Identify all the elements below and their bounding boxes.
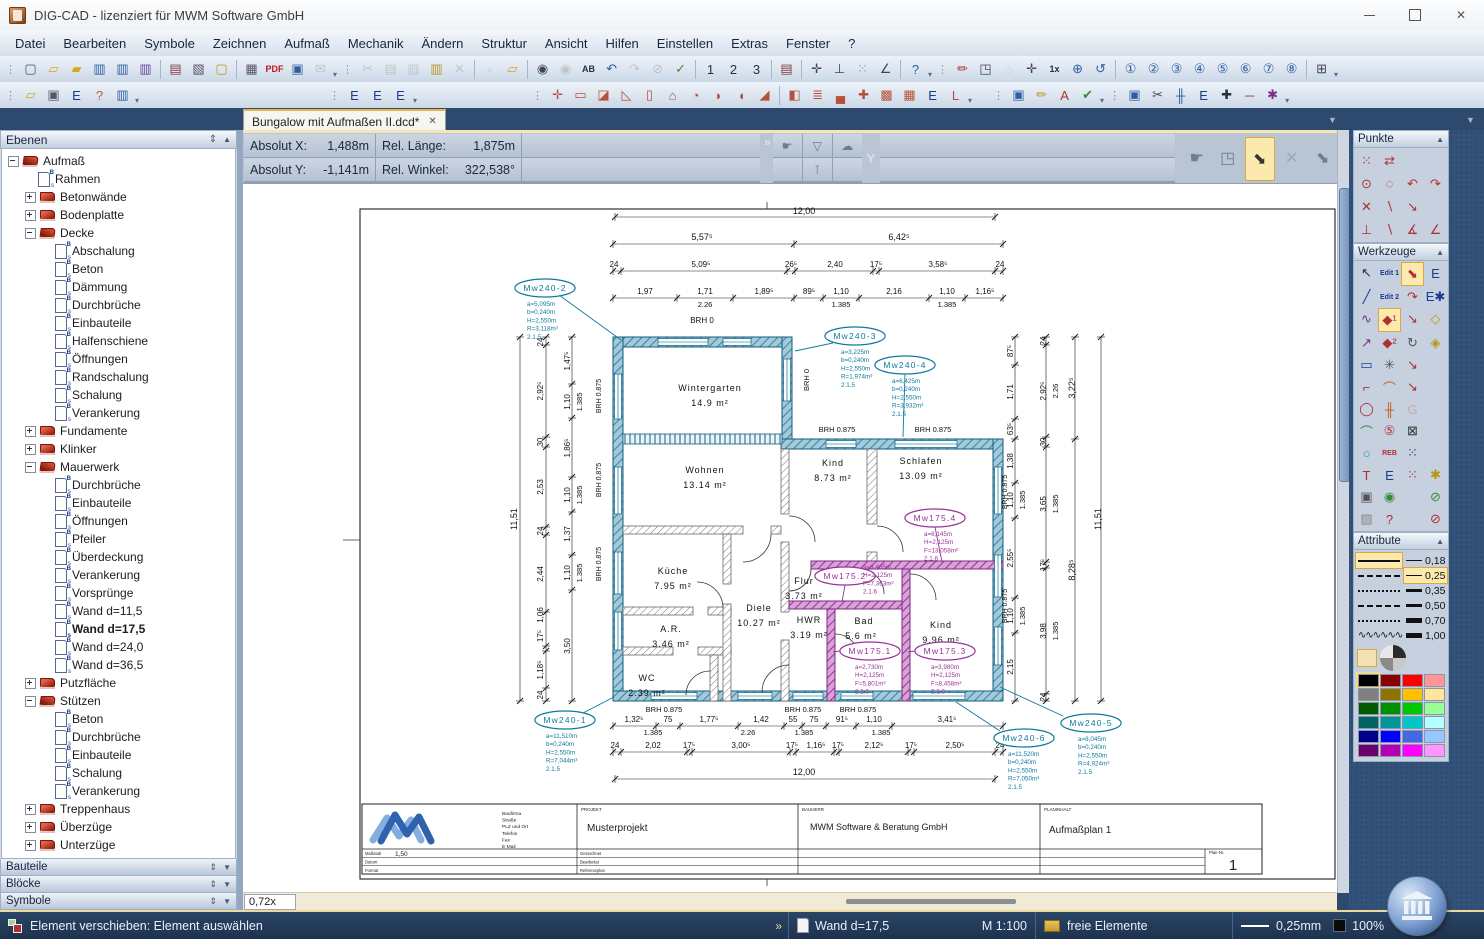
tree-item-wand-d=36,5[interactable]: BsWand d=36,5 (2, 656, 235, 674)
color-swatch-#96c8ff[interactable] (1424, 730, 1445, 743)
confirm-icon[interactable]: ✓ (669, 58, 692, 80)
corner-tool-icon[interactable]: ⌐ (1355, 376, 1378, 398)
mirror-tool-icon[interactable]: ↗ (1355, 332, 1378, 354)
aufmass-slope-icon[interactable]: ◢ (753, 84, 776, 106)
view-8-icon[interactable]: ⑧ (1280, 58, 1303, 80)
text-attributes-icon[interactable]: A (1053, 84, 1076, 106)
aufmass-stack-icon[interactable]: ▄ (829, 84, 852, 106)
move-copy-button[interactable]: ⬊ (1309, 137, 1337, 179)
layers-panel-header[interactable]: Ebenen ⇕ ▲ (0, 130, 237, 149)
snap-angle-icon[interactable]: ∠ (874, 58, 897, 80)
tree-item-betonwände[interactable]: Betonwände (2, 188, 235, 206)
line-style-2[interactable] (1356, 583, 1402, 598)
pan-hand-button[interactable]: ☛ (1183, 137, 1211, 179)
snap-settings-icon[interactable]: ✳ (1378, 354, 1401, 376)
polyline-tool-icon[interactable]: ∿ (1355, 308, 1378, 330)
arc-point-tool-icon[interactable]: ⌒ (1378, 376, 1401, 398)
tree-item-überdeckung[interactable]: BsÜberdeckung (2, 548, 235, 566)
snap-blank-icon[interactable] (833, 158, 862, 181)
menu-extras[interactable]: Extras (722, 32, 777, 55)
callout-detail: 2.1.6 (931, 689, 946, 696)
node-add-icon[interactable]: ✚ (1215, 84, 1238, 106)
hide-image-icon[interactable]: ⊘ (1424, 508, 1447, 530)
menu-?[interactable]: ? (839, 32, 864, 55)
toolbar-overflow-icon[interactable]: ▾ (1334, 70, 1338, 82)
undo-icon[interactable]: ↶ (600, 58, 623, 80)
panel-expand-icon[interactable]: ▼ (223, 897, 231, 906)
color-swatch-#6a006a[interactable] (1358, 744, 1379, 757)
panel-collapse-icon[interactable]: ▲ (1436, 537, 1444, 546)
active-layer-indicator[interactable]: Wand d=17,5 M 1:100 (788, 912, 1035, 939)
tree-item-wand-d=17,5[interactable]: BsWand d=17,5 (2, 620, 235, 638)
zoom-previous-icon[interactable]: ↺ (1089, 58, 1112, 80)
line-style-1[interactable] (1356, 568, 1402, 583)
dimension-label: 1,10 (563, 565, 572, 581)
color-swatch-#ff0000[interactable] (1402, 674, 1423, 687)
panel-spin-icon[interactable]: ⇕ (210, 862, 218, 873)
collapse-icon[interactable] (8, 156, 19, 167)
toolbar-overflow-icon[interactable]: ▾ (413, 96, 417, 108)
page-copy-icon[interactable]: ▢ (210, 58, 233, 80)
style-brush-icon[interactable]: ✏ (1030, 84, 1053, 106)
print-icon[interactable]: ▦ (240, 58, 263, 80)
page-setup-icon[interactable]: ▤ (164, 58, 187, 80)
color-swatch-#000000[interactable] (1358, 674, 1379, 687)
color-swatch-#8f7500[interactable] (1380, 688, 1401, 701)
expand-icon[interactable] (25, 678, 36, 689)
aufmass-e-icon[interactable]: E (921, 84, 944, 106)
tree-item-putzfläche[interactable]: Putzfläche (2, 674, 235, 692)
book-icon (40, 426, 55, 437)
dimension-label: 1,06 (536, 607, 545, 623)
point-center-icon[interactable]: ⊙ (1355, 172, 1378, 195)
point-on-element-icon[interactable]: ∖ (1378, 195, 1401, 218)
point-arc-cw-icon[interactable]: ↶ (1401, 172, 1424, 195)
arc-tool-icon[interactable]: ⌒ (1355, 420, 1378, 442)
tree-item-randschalung[interactable]: BsRandschalung (2, 368, 235, 386)
hide-photo-icon[interactable]: ⊘ (1424, 486, 1447, 508)
tree-item-fundamente[interactable]: Fundamente (2, 422, 235, 440)
panel-collapse-icon[interactable]: ▲ (223, 135, 231, 144)
view-2-icon[interactable]: ② (1142, 58, 1165, 80)
tree-item-beton[interactable]: BsBeton (2, 710, 235, 728)
magic-wand-icon[interactable]: ✱ (1424, 464, 1447, 486)
block-edit-icon[interactable]: E (1378, 464, 1401, 486)
coord-input-field[interactable] (880, 158, 1175, 181)
panel-header-bauteile[interactable]: Bauteile⇕▼ (0, 859, 237, 876)
color-swatch-#ff96ff[interactable] (1424, 744, 1445, 757)
insert-file-icon[interactable]: ▱ (501, 58, 524, 80)
dimension-label: 24 (1039, 336, 1048, 345)
tree-item-aufmaß[interactable]: Aufmaß (2, 152, 235, 170)
relative-length-value: 1,875m (473, 139, 515, 153)
color-swatch-#4169e1[interactable] (1402, 730, 1423, 743)
tree-item-label: Öffnungen (72, 352, 128, 366)
layer-page-icon: Bs (55, 604, 67, 619)
menu-fenster[interactable]: Fenster (777, 32, 839, 55)
snap-cross-icon[interactable]: ✛ (805, 58, 828, 80)
element-mode-indicator[interactable]: freie Elemente (1035, 912, 1232, 939)
export-pdf-icon[interactable]: PDF (263, 58, 286, 80)
line-style-0[interactable] (1356, 553, 1402, 568)
snap-foot-icon[interactable]: ⊥ (828, 58, 851, 80)
line-weight-1,00[interactable]: 1,00 (1404, 628, 1447, 643)
grid-icon[interactable]: ⁙ (851, 58, 874, 80)
point-angle-icon[interactable]: ∡ (1401, 218, 1424, 241)
color-swatch-#006464[interactable] (1358, 716, 1379, 729)
aufmass-rect-icon[interactable]: ▭ (569, 84, 592, 106)
aufmass-rect2-icon[interactable]: ▯ (638, 84, 661, 106)
text-tool-icon[interactable]: T (1355, 464, 1378, 486)
menu-ansicht[interactable]: Ansicht (536, 32, 597, 55)
color-swatch-#ff00ff[interactable] (1402, 744, 1423, 757)
point-arc-ccw-icon[interactable]: ↷ (1424, 172, 1447, 195)
tree-item-öffnungen[interactable]: BsÖffnungen (2, 350, 235, 368)
point-perpendicular-icon[interactable]: ⊥ (1355, 218, 1378, 241)
page-e-new-icon[interactable]: E✱ (1424, 286, 1447, 308)
callout-detail: a=3,465m (863, 564, 891, 571)
werkzeuge-panel-header[interactable]: Werkzeuge ▲ (1353, 243, 1449, 261)
edit-measure-2-icon[interactable]: ▣ (1123, 84, 1146, 106)
redraw-brush-icon[interactable]: ✏ (951, 58, 974, 80)
menu-datei[interactable]: Datei (6, 32, 54, 55)
tree-item-rahmen[interactable]: BsRahmen (2, 170, 235, 188)
paste-special-icon[interactable]: ▥ (425, 58, 448, 80)
pan-icon[interactable]: ✛ (1020, 58, 1043, 80)
ellipse-tool-icon[interactable]: ○ (1355, 442, 1378, 464)
list-settings-icon[interactable]: ✔ (1076, 84, 1099, 106)
color-swatch-#96ff96[interactable] (1424, 702, 1445, 715)
tree-item-wand-d=24,0[interactable]: BsWand d=24,0 (2, 638, 235, 656)
tree-item-verankerung[interactable]: BsVerankerung (2, 782, 235, 800)
solid-3d-tool-icon[interactable]: ◉ (1378, 486, 1401, 508)
layers-icon[interactable]: ▤ (775, 58, 798, 80)
aufmass-wedge-icon[interactable]: ◖ (730, 84, 753, 106)
collapse-icon[interactable] (25, 696, 36, 707)
point-endpoint-icon[interactable]: ↘ (1401, 195, 1424, 218)
snap-text-point-icon[interactable]: ⊺ (803, 158, 832, 181)
horizontal-scroll-thumb[interactable] (846, 899, 1016, 904)
panel-expand-icon[interactable]: ▼ (223, 880, 231, 889)
tree-item-vorsprünge[interactable]: BsVorsprünge (2, 584, 235, 602)
edit-measure-icon[interactable]: ▣ (1007, 84, 1030, 106)
photo-tool-icon[interactable]: ▣ (1355, 486, 1378, 508)
tree-item-beton[interactable]: BsBeton (2, 260, 235, 278)
point-reference-icon[interactable]: ∠ (1424, 218, 1447, 241)
tree-item-treppenhaus[interactable]: Treppenhaus (2, 800, 235, 818)
panel-spin-icon[interactable]: ⇕ (210, 896, 218, 907)
attribute-panel-header[interactable]: Attribute ▲ (1353, 532, 1449, 550)
save-icon[interactable]: ▥ (88, 58, 111, 80)
open-project-icon[interactable]: ▰ (65, 58, 88, 80)
tree-item-verankerung[interactable]: BsVerankerung (2, 566, 235, 584)
line-style-5[interactable]: ∿∿∿∿∿∿ (1356, 628, 1402, 643)
menu-hilfen[interactable]: Hilfen (597, 32, 648, 55)
view-3-icon[interactable]: ③ (1165, 58, 1188, 80)
empty-cell (1401, 149, 1424, 172)
new-file-icon[interactable]: ▢ (19, 58, 42, 80)
line-weight-0,18[interactable]: 0,18 (1404, 553, 1447, 568)
measure-help-icon[interactable]: ? (88, 84, 111, 106)
page-e-icon[interactable]: E (1424, 262, 1447, 284)
tree-item-mauerwerk[interactable]: Mauerwerk (2, 458, 235, 476)
toolbar-overflow-icon[interactable]: ▾ (968, 96, 972, 108)
page-e-left-icon[interactable]: E (366, 84, 389, 106)
point-tangent-icon[interactable]: ∖ (1378, 218, 1401, 241)
tree-item-durchbrüche[interactable]: BsDurchbrüche (2, 296, 235, 314)
view-4-icon[interactable]: ④ (1188, 58, 1211, 80)
snap-cloud-icon[interactable]: ☁ (833, 134, 862, 157)
color-swatch-#8b0000[interactable] (1380, 674, 1401, 687)
point-absolute-icon[interactable]: ⁙ (1355, 149, 1378, 172)
zoom-in-icon[interactable]: ⊕ (1066, 58, 1089, 80)
aufmass-volume-icon[interactable]: ◧ (783, 84, 806, 106)
image-tool-icon[interactable]: ▨ (1355, 508, 1378, 530)
tree-item-verankerung[interactable]: BsVerankerung (2, 404, 235, 422)
toolbar-overflow-icon[interactable]: ▾ (928, 70, 932, 82)
move-point-2-icon[interactable]: ◆² (1378, 332, 1401, 354)
measure-query-icon[interactable]: ? (1378, 508, 1401, 530)
edit-2-icon[interactable]: Edit 2 (1378, 286, 1401, 308)
color-swatch-#009696[interactable] (1380, 716, 1401, 729)
circle-tool-icon[interactable]: ◯ (1355, 398, 1378, 420)
move-element-button[interactable]: ⬊ (1245, 137, 1275, 181)
panel-dropdown-icon[interactable]: ▼ (1466, 115, 1475, 125)
aufmass-grid-icon[interactable]: ▩ (875, 84, 898, 106)
color-swatch-#ff9696[interactable] (1424, 674, 1445, 687)
expand-icon[interactable] (25, 804, 36, 815)
expand-icon[interactable] (25, 210, 36, 221)
copy-e-icon[interactable]: E (1192, 84, 1215, 106)
panel-header-symbole[interactable]: Symbole⇕▼ (0, 893, 237, 910)
point-quadrant-icon[interactable]: ◌ (1378, 172, 1401, 195)
tree-item-einbauteile[interactable]: BsEinbauteile (2, 494, 235, 512)
menu-ndern[interactable]: Ändern (412, 32, 472, 55)
toolbar-overflow-icon[interactable]: ▾ (333, 70, 337, 82)
coord-input-field[interactable] (880, 134, 1175, 157)
color-swatch-#00c800[interactable] (1402, 702, 1423, 715)
menu-struktur[interactable]: Struktur (472, 32, 536, 55)
aufmass-arc-icon[interactable]: ◗ (707, 84, 730, 106)
expand-icon[interactable] (25, 822, 36, 833)
tree-item-klinker[interactable]: Klinker (2, 440, 235, 458)
zoom-1x-icon[interactable]: 1x (1043, 58, 1066, 80)
points-color-icon[interactable]: ⁙ (1401, 464, 1424, 486)
tree-item-öffnungen[interactable]: BsÖffnungen (2, 512, 235, 530)
color-swatch-#808080[interactable] (1358, 688, 1379, 701)
color-swatch-#00c8c8[interactable] (1402, 716, 1423, 729)
page-2-icon[interactable]: 2 (722, 58, 745, 80)
rename-ab-icon[interactable]: AB (577, 58, 600, 80)
tree-item-einbauteile[interactable]: BsEinbauteile (2, 746, 235, 764)
insert-point-icon[interactable]: ✛ (546, 84, 569, 106)
save-as-icon[interactable]: ▥ (111, 58, 134, 80)
line-weight-0,25[interactable]: 0,25 (1404, 568, 1447, 583)
collapse-icon[interactable] (25, 462, 36, 473)
rect-tool-icon[interactable]: ▭ (1355, 354, 1378, 376)
punkte-panel-header[interactable]: Punkte ▲ (1353, 130, 1449, 148)
menu-symbole[interactable]: Symbole (135, 32, 204, 55)
zoom-fit-icon[interactable]: ◳ (974, 58, 997, 80)
points-check-icon[interactable]: ⁙ (1401, 442, 1424, 464)
node-remove-icon[interactable]: ─ (1238, 84, 1261, 106)
callout-detail: H=2,550m (527, 317, 556, 324)
aufmass-house-icon[interactable]: ⌂ (661, 84, 684, 106)
delete-element-tool-icon[interactable]: ⊠ (1401, 420, 1424, 442)
zoom-extents-button[interactable]: ◳ (1214, 137, 1242, 179)
coordbar-overflow-chevron[interactable]: » (764, 135, 771, 183)
search-icon[interactable]: ◉ (531, 58, 554, 80)
tree-item-dämmung[interactable]: BsDämmung (2, 278, 235, 296)
select-tool-icon[interactable]: ↖ (1355, 262, 1378, 284)
line-weight-0,35[interactable]: 0,35 (1404, 583, 1447, 598)
point-relative-icon[interactable]: ⇄ (1378, 149, 1401, 172)
line-weight-0,50[interactable]: 0,50 (1404, 598, 1447, 613)
drawing-canvas[interactable]: 12,005,57⁵6,42⁵245,09⁵26⁵2,4017⁵3,58⁵241… (243, 184, 1337, 892)
panel-expand-icon[interactable]: ▼ (223, 863, 231, 872)
menu-einstellen[interactable]: Einstellen (648, 32, 722, 55)
zoom-window-icon[interactable]: ⊞ (1310, 58, 1333, 80)
tree-item-durchbrüche[interactable]: BsDurchbrüche (2, 728, 235, 746)
maximize-button[interactable] (1392, 0, 1438, 30)
fill-pattern-picker[interactable] (1380, 645, 1406, 671)
book-icon (40, 804, 55, 815)
page-3-icon[interactable]: 3 (745, 58, 768, 80)
tree-item-wand-d=11,5[interactable]: BsWand d=11,5 (2, 602, 235, 620)
tree-item-überzüge[interactable]: Überzüge (2, 818, 235, 836)
panel-spin-icon[interactable]: ⇕ (210, 879, 218, 890)
aufmass-add-icon[interactable]: ✚ (852, 84, 875, 106)
tree-item-schalung[interactable]: BsSchalung (2, 764, 235, 782)
aufmass-triangle-icon[interactable]: ◺ (615, 84, 638, 106)
aufmass-circle-segment-icon[interactable]: ◔ (684, 84, 707, 106)
snap-filter-icon[interactable]: ▽ (803, 134, 832, 157)
help-icon[interactable]: ? (904, 58, 927, 80)
expand-icon[interactable] (25, 426, 36, 437)
panel-spin-icon[interactable]: ⇕ (209, 134, 217, 145)
collapse-icon[interactable] (25, 228, 36, 239)
tree-item-halfenschiene[interactable]: BsHalfenschiene (2, 332, 235, 350)
color-swatch-#008f00[interactable] (1380, 702, 1401, 715)
status-overflow-chevron[interactable]: » (769, 919, 788, 933)
toolbar-overflow-icon[interactable]: ▾ (1285, 96, 1289, 108)
color-swatch-#ffc000[interactable] (1402, 688, 1423, 701)
tree-item-stützen[interactable]: Stützen (2, 692, 235, 710)
line-attributes-indicator[interactable]: 0,25mm 100% (1232, 912, 1484, 939)
export-image-icon[interactable]: ▣ (286, 58, 309, 80)
tree-item-schalung[interactable]: BsSchalung (2, 386, 235, 404)
copy-pages-icon[interactable]: ▣ (42, 84, 65, 106)
close-button[interactable]: ✕ (1438, 0, 1484, 30)
menu-mechanik[interactable]: Mechanik (339, 32, 413, 55)
view-5-icon[interactable]: ⑤ (1211, 58, 1234, 80)
line-style-3[interactable] (1356, 598, 1402, 613)
node-magic-icon[interactable]: ✱ (1261, 84, 1284, 106)
page-e-up-icon[interactable]: E (389, 84, 412, 106)
rotate-insert-tool-icon[interactable]: ↻ (1401, 332, 1424, 354)
menu-aufma[interactable]: Aufmaß (275, 32, 339, 55)
fill-style-selected[interactable] (1358, 650, 1376, 666)
page-element-icon[interactable]: E (65, 84, 88, 106)
minimize-button[interactable] (1346, 0, 1392, 30)
line-weight-0,70[interactable]: 0,70 (1404, 613, 1447, 628)
copy-move-tool-icon[interactable]: ↘ (1401, 354, 1424, 376)
tab-close-icon[interactable]: ✕ (428, 116, 436, 127)
adjust-lines-icon[interactable]: ╫ (1169, 84, 1192, 106)
color-swatch-#0000ff[interactable] (1380, 730, 1401, 743)
page-e-copy-icon[interactable]: E (343, 84, 366, 106)
document-tab[interactable]: Bungalow mit Aufmaßen II.dcd* ✕ (243, 109, 446, 132)
view-7-icon[interactable]: ⑦ (1257, 58, 1280, 80)
rotate-copy-tool-icon[interactable]: ↷ (1401, 286, 1424, 308)
reb-tool-icon[interactable]: REB (1378, 442, 1401, 464)
block-copy-tool-icon[interactable]: ◇ (1424, 308, 1447, 330)
menu-zeichnen[interactable]: Zeichnen (204, 32, 275, 55)
open-file-icon[interactable]: ▱ (42, 58, 65, 80)
aufmass-door-icon[interactable]: ◪ (592, 84, 615, 106)
panel-collapse-icon[interactable]: ▲ (1436, 135, 1444, 144)
dimension-tool-icon[interactable]: ╫ (1378, 398, 1401, 420)
tree-item-durchbrüche[interactable]: BsDurchbrüche (2, 476, 235, 494)
print-preview-icon[interactable]: ▧ (187, 58, 210, 80)
move-element-tool-icon[interactable]: ⬊ (1401, 262, 1424, 286)
toolbar-overflow-icon[interactable]: ▾ (1100, 96, 1104, 108)
section-tool-icon[interactable]: ⑤ (1378, 420, 1401, 442)
save-all-icon[interactable]: ▥ (134, 58, 157, 80)
save-small-icon[interactable]: ▥ (111, 84, 134, 106)
view-1-icon[interactable]: ① (1119, 58, 1142, 80)
tree-item-unterzüge[interactable]: Unterzüge (2, 836, 235, 854)
line-style-4[interactable] (1356, 613, 1402, 628)
aufmass-l-icon[interactable]: L (944, 84, 967, 106)
split-element-icon[interactable]: ✂ (1146, 84, 1169, 106)
panel-header-blöcke[interactable]: Blöcke⇕▼ (0, 876, 237, 893)
color-swatch-#005a00[interactable] (1358, 702, 1379, 715)
move-point-1-icon[interactable]: ◆¹ (1378, 308, 1401, 332)
tab-list-dropdown-icon[interactable]: ▼ (1328, 115, 1337, 125)
point-intersection-icon[interactable]: ✕ (1355, 195, 1378, 218)
color-swatch-#ffe699[interactable] (1424, 688, 1445, 701)
expand-icon[interactable] (25, 192, 36, 203)
callout-detail: H=2,550m (546, 749, 575, 756)
tree-item-decke[interactable]: Decke (2, 224, 235, 242)
tree-item-pfeiler[interactable]: BsPfeiler (2, 530, 235, 548)
toolbar-overflow-icon[interactable]: ▾ (135, 96, 139, 108)
color-swatch-#b400b4[interactable] (1380, 744, 1401, 757)
view-6-icon[interactable]: ⑥ (1234, 58, 1257, 80)
expand-icon[interactable] (25, 444, 36, 455)
page-1-icon[interactable]: 1 (699, 58, 722, 80)
copy-rotate-tool-icon[interactable]: ↘ (1401, 376, 1424, 398)
expand-icon[interactable] (25, 840, 36, 851)
panel-collapse-icon[interactable]: ▲ (1436, 248, 1444, 257)
copy-element-tool-icon[interactable]: ↘ (1401, 308, 1424, 330)
tree-item-abschalung[interactable]: BsAbschalung (2, 242, 235, 260)
snap-none-icon[interactable] (773, 158, 802, 181)
tree-item-bodenplatte[interactable]: Bodenplatte (2, 206, 235, 224)
tree-item-einbauteile[interactable]: BsEinbauteile (2, 314, 235, 332)
open-folder-icon[interactable]: ▱ (19, 84, 42, 106)
line-tool-icon[interactable]: ╱ (1355, 286, 1378, 308)
edit-1-icon[interactable]: Edit 1 (1378, 262, 1401, 284)
aufmass-layers-icon[interactable]: ≣ (806, 84, 829, 106)
snap-hand-icon[interactable]: ☛ (773, 134, 802, 157)
color-swatch-#b4ffff[interactable] (1424, 716, 1445, 729)
block-new-tool-icon[interactable]: ◈ (1424, 332, 1447, 354)
color-swatch-#00008b[interactable] (1358, 730, 1379, 743)
menu-bearbeiten[interactable]: Bearbeiten (54, 32, 135, 55)
aufmass-table-icon[interactable]: ▦ (898, 84, 921, 106)
